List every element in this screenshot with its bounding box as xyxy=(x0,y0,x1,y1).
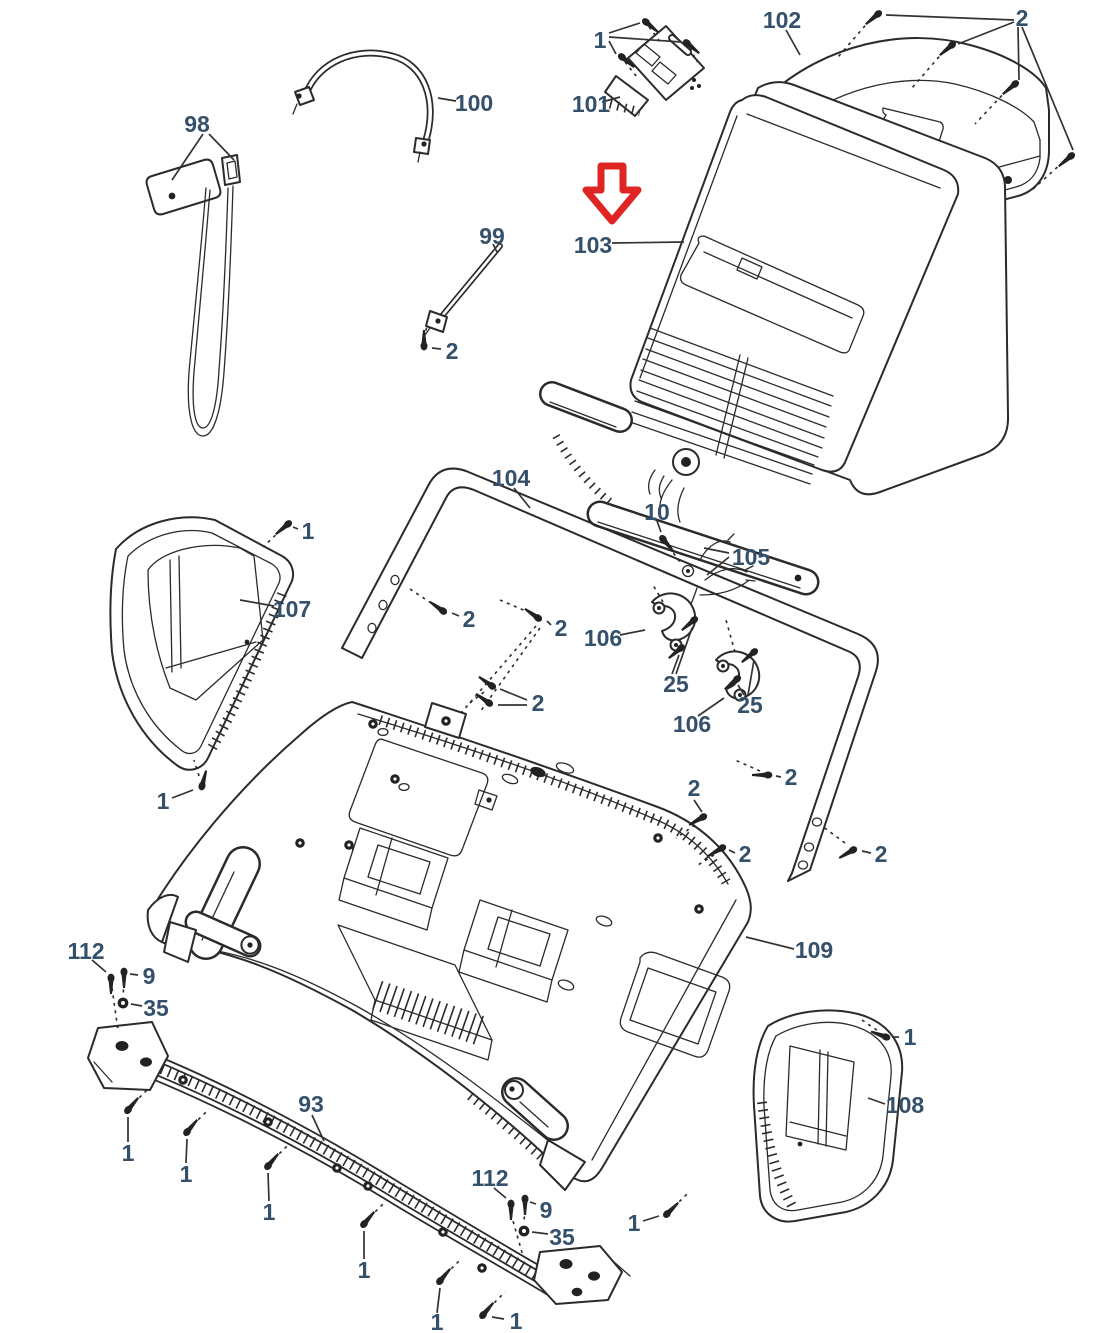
part-99-rod xyxy=(425,246,500,335)
callout-112-right: 112 xyxy=(471,1165,508,1191)
callout-101-screws: 1 xyxy=(594,27,607,53)
callout-102-screws: 2 xyxy=(1016,5,1029,31)
screw-icon xyxy=(523,606,544,623)
callout-93-screw-4: 1 xyxy=(358,1257,371,1283)
callout-102: 102 xyxy=(763,7,801,33)
callout-107-screw-bottom: 1 xyxy=(157,788,170,814)
screw-icon xyxy=(640,16,660,34)
screw-icon xyxy=(837,845,858,861)
callout-35-right: 35 xyxy=(549,1224,575,1250)
part-103-console xyxy=(550,82,1008,588)
screw-icon xyxy=(661,1200,680,1219)
screw-icon xyxy=(434,1266,452,1286)
screw-icon xyxy=(273,518,293,536)
callout-93-screw-1: 1 xyxy=(122,1140,135,1166)
callout-107: 107 xyxy=(273,596,311,622)
screw-icon xyxy=(1056,150,1076,168)
callout-108-screw-bottom: 1 xyxy=(628,1210,641,1236)
callout-93-screw-3: 1 xyxy=(263,1199,276,1225)
diagram-canvas: 1 101 102 2 100 98 99 2 103 104 10 105 2… xyxy=(0,0,1100,1333)
callout-93: 93 xyxy=(298,1091,324,1117)
callout-106-b: 106 xyxy=(673,711,711,737)
screw-icon xyxy=(752,772,772,779)
callout-112-left: 112 xyxy=(67,938,104,964)
callout-9-left: 9 xyxy=(143,963,156,989)
callout-106-a: 106 xyxy=(584,625,622,651)
callout-105: 105 xyxy=(732,544,771,570)
callout-108: 108 xyxy=(886,1092,925,1118)
callout-103: 103 xyxy=(574,232,612,258)
callout-2-d: 2 xyxy=(688,775,701,801)
nut-icon xyxy=(118,998,129,1009)
callout-100: 100 xyxy=(455,90,493,116)
callout-107-screw-top: 1 xyxy=(302,518,315,544)
callout-109: 109 xyxy=(795,937,833,963)
screw-icon xyxy=(508,1200,515,1220)
screw-icon xyxy=(262,1151,280,1171)
part-98-clip-strap xyxy=(147,155,240,436)
callout-93-screw-5: 1 xyxy=(431,1309,444,1333)
screw-icon xyxy=(197,770,209,792)
callout-10: 10 xyxy=(644,499,670,525)
callout-35-left: 35 xyxy=(143,995,169,1021)
callout-2-a: 2 xyxy=(463,606,476,632)
callout-108-screw-top: 1 xyxy=(904,1024,917,1050)
exploded-view-drawing: 1 101 102 2 100 98 99 2 103 104 10 105 2… xyxy=(0,0,1100,1333)
callout-9-right: 9 xyxy=(540,1197,553,1223)
callout-99: 99 xyxy=(479,223,505,249)
screw-icon xyxy=(863,8,883,26)
callout-2-e: 2 xyxy=(785,764,798,790)
callout-2-f: 2 xyxy=(739,841,752,867)
part-108-right-pocket xyxy=(754,1010,903,1221)
screw-icon xyxy=(108,974,115,994)
callout-98: 98 xyxy=(184,111,210,137)
callout-25-a: 25 xyxy=(663,671,689,697)
nut-icon xyxy=(519,1226,530,1237)
callout-2-g: 2 xyxy=(875,841,888,867)
screw-icon xyxy=(474,691,495,708)
callout-25-b: 25 xyxy=(737,692,763,718)
screw-icon xyxy=(122,1095,140,1115)
screw-icon xyxy=(358,1209,376,1229)
callout-104: 104 xyxy=(492,465,531,491)
callout-99-screw: 2 xyxy=(446,338,459,364)
screw-icon xyxy=(428,599,449,616)
callout-93-screw-6: 1 xyxy=(510,1308,523,1333)
callout-93-screw-2: 1 xyxy=(180,1161,193,1187)
screw-icon xyxy=(181,1117,199,1137)
part-100-cable xyxy=(293,53,430,162)
callout-101: 101 xyxy=(572,91,611,117)
screw-icon xyxy=(477,674,498,691)
callout-2-c: 2 xyxy=(532,690,545,716)
part-107-left-pocket xyxy=(110,517,293,769)
red-arrow-marker xyxy=(586,166,638,221)
callout-2-b: 2 xyxy=(555,615,568,641)
